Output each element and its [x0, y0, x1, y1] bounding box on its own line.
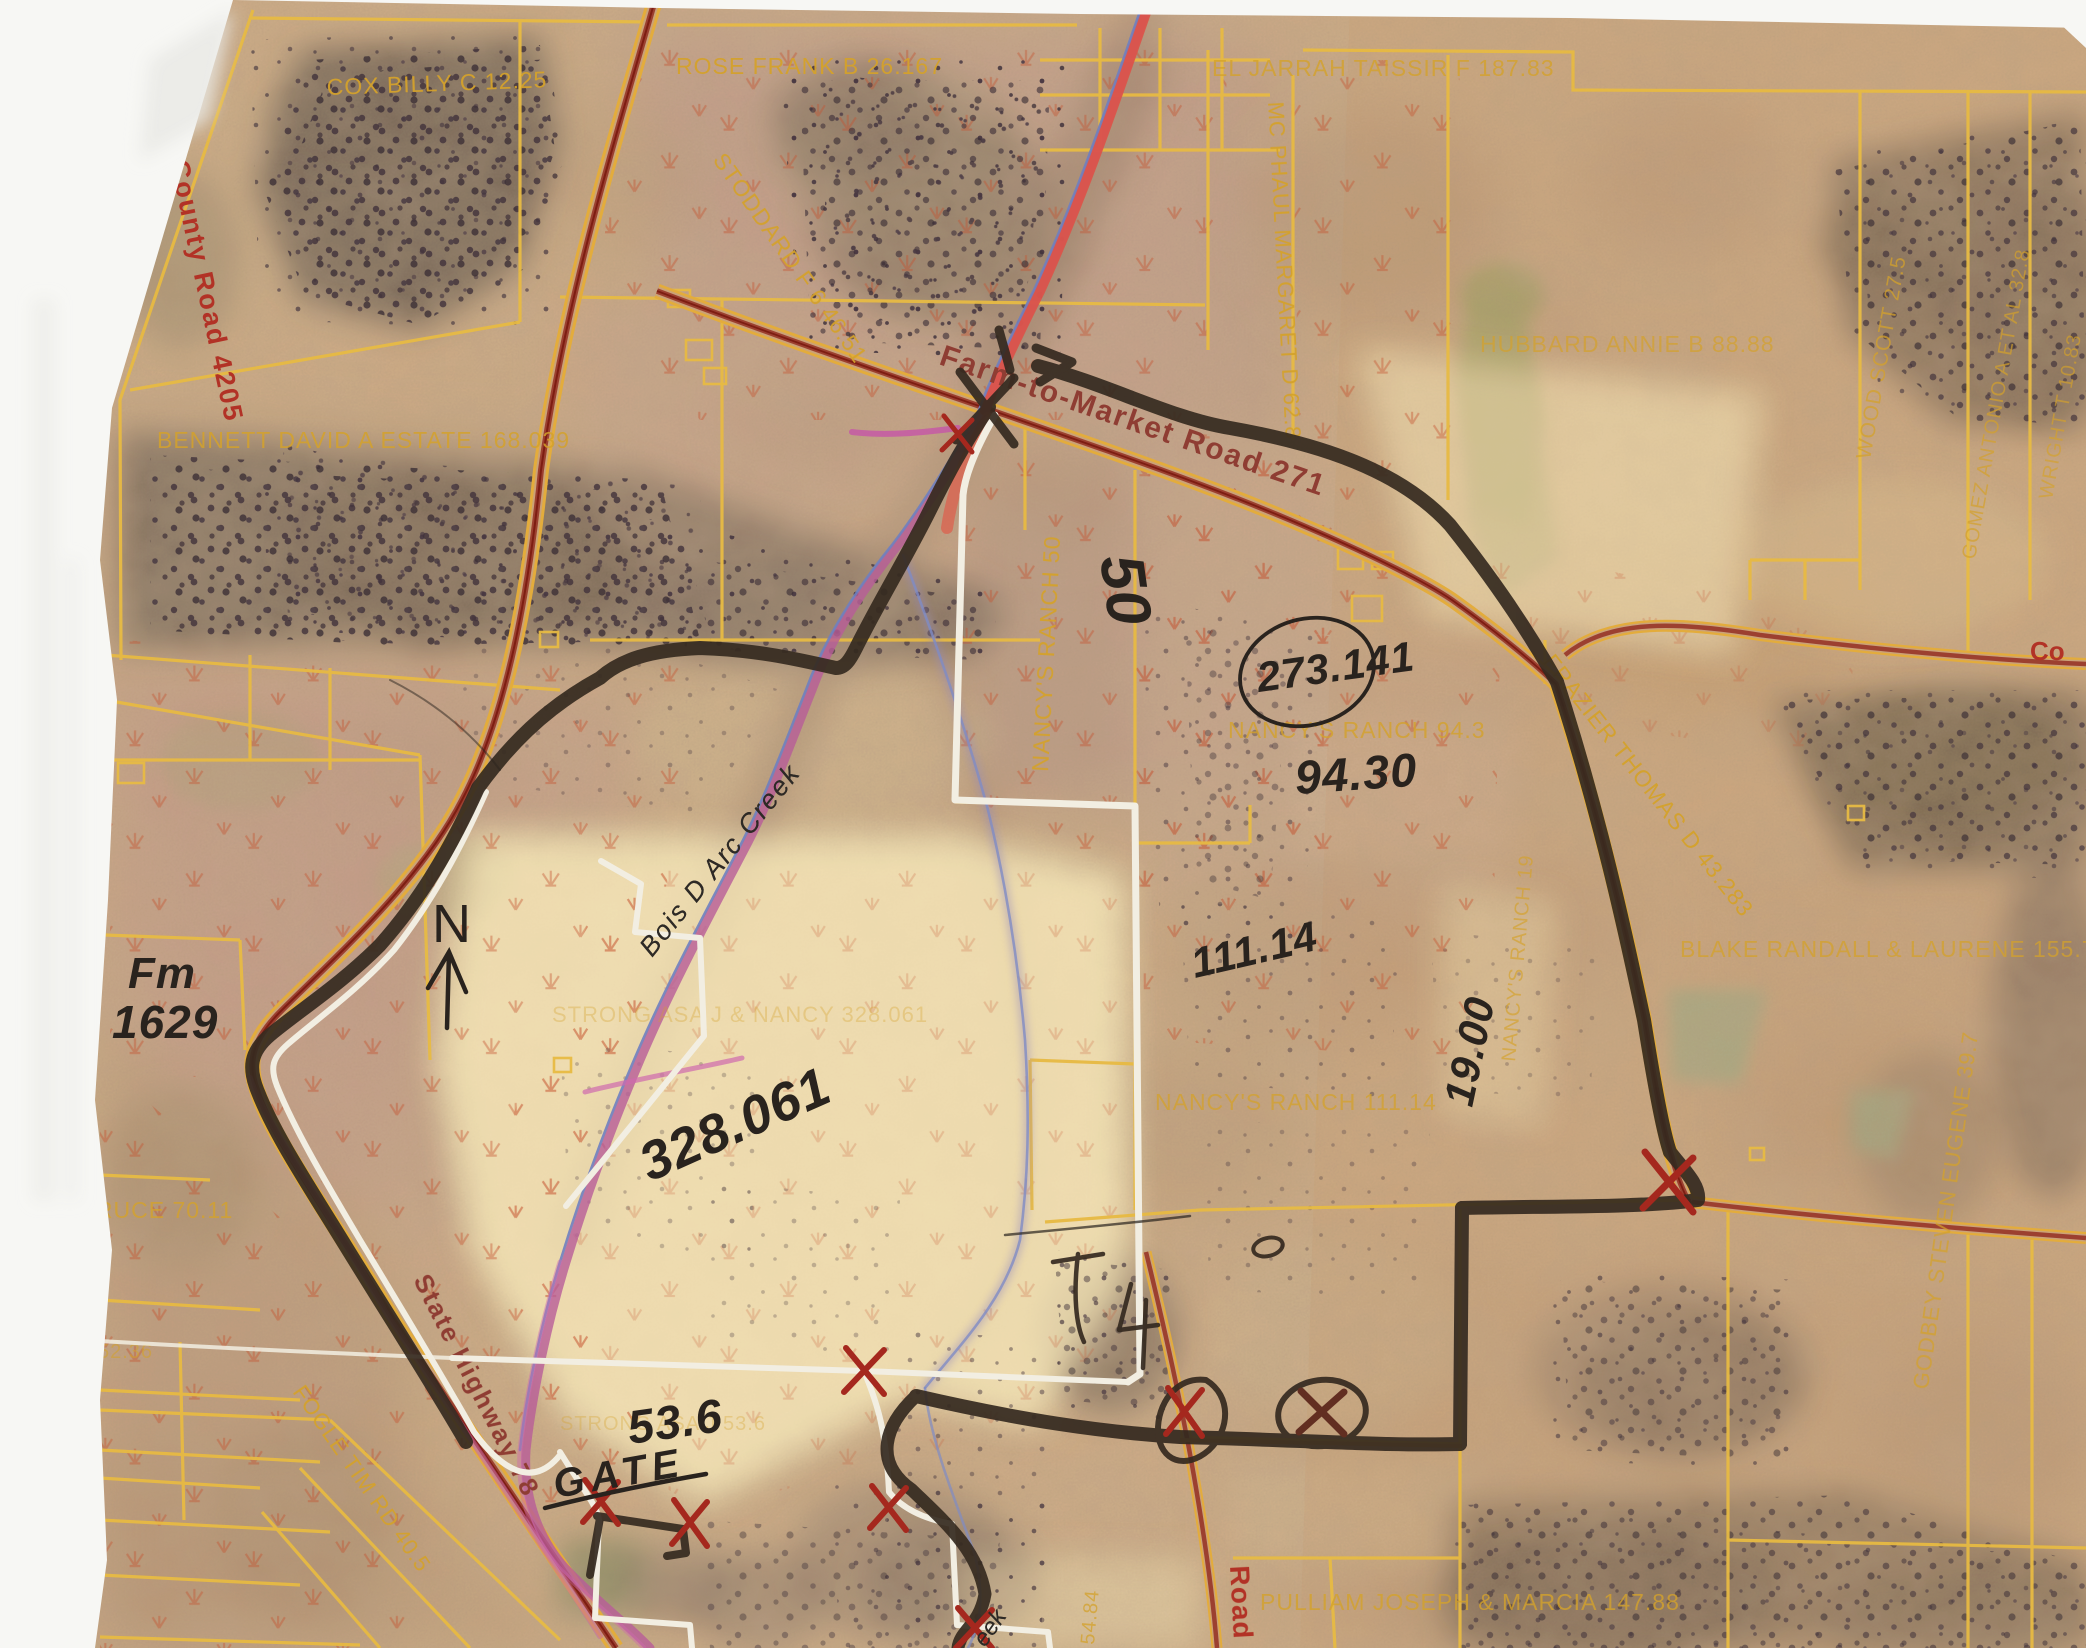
svg-text:Co: Co: [2030, 636, 2065, 666]
svg-text:94.30: 94.30: [1293, 743, 1419, 804]
svg-text:ROSE FRANK B 26.167: ROSE FRANK B 26.167: [676, 53, 943, 79]
svg-text:Fm: Fm: [128, 949, 196, 998]
svg-text:HUBBARD ANNIE B 88.88: HUBBARD ANNIE B 88.88: [1480, 331, 1775, 357]
svg-text:NANCY'S RANCH 111.14: NANCY'S RANCH 111.14: [1155, 1089, 1437, 1115]
svg-text:PULLIAM JOSEPH & MARCIA 147.88: PULLIAM JOSEPH & MARCIA 147.88: [1260, 1589, 1680, 1615]
svg-text:STRONG ASA J & NANCY 328.061: STRONG ASA J & NANCY 328.061: [552, 1002, 928, 1027]
svg-text:50: 50: [1086, 550, 1164, 630]
svg-text:BENNETT DAVID A ESTATE 168.039: BENNETT DAVID A ESTATE 168.039: [157, 427, 570, 453]
svg-text:N: N: [432, 894, 472, 954]
svg-text:1629: 1629: [112, 996, 218, 1048]
svg-text:EL JARRAH TAISSIR F 187.83: EL JARRAH TAISSIR F 187.83: [1212, 55, 1555, 81]
svg-text:BLAKE RANDALL & LAURENE 155.78: BLAKE RANDALL & LAURENE 155.784: [1680, 936, 2086, 962]
